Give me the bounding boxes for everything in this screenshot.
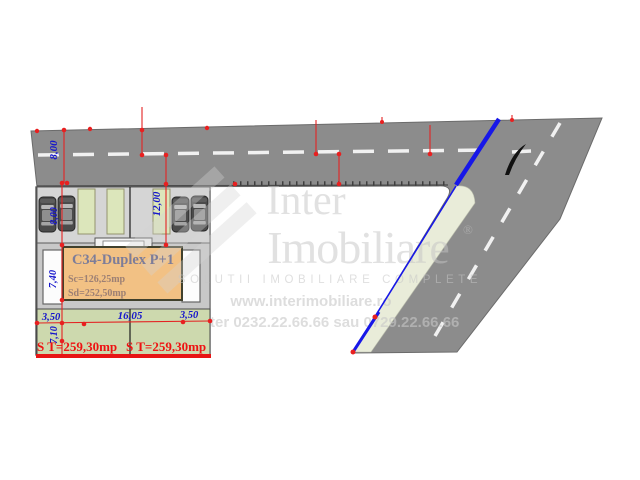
green-strip-1 [78, 189, 95, 234]
watermark-brand-top: Inter [266, 178, 345, 224]
watermark-website: www.interimobiliare.ro [229, 293, 391, 310]
watermark-registered-icon: ® [463, 222, 473, 237]
building-developed-area: Sd=252,50mp [68, 288, 127, 299]
dim-building-depth: 7,40 [48, 269, 59, 288]
dim-front-right: 3,50 [179, 310, 199, 321]
watermark-phone: ter 0232.22.66.66 sau 0729.22.66.66 [210, 314, 459, 331]
watermark-tagline: SOLUTII IMOBILIARE COMPLETE [178, 274, 482, 286]
building-title: C34-Duplex P+1 [72, 252, 174, 268]
dim-front-width: 16,05 [118, 310, 143, 322]
lot-right-area-label: S T=259,30mp [126, 339, 206, 354]
lot-left-area-label: S T=259,30mp [37, 339, 117, 354]
building-built-area: Sc=126,25mp [68, 274, 126, 285]
dim-front-left: 3,50 [41, 312, 61, 323]
site-plan-screenshot: Inter Imobiliare ® SOLUTII IMOBILIARE CO… [0, 0, 640, 480]
site-plan-svg: Inter Imobiliare ® SOLUTII IMOBILIARE CO… [0, 0, 640, 480]
dim-road-width: 8,00 [48, 140, 60, 160]
dim-side-depth: 12,00 [151, 191, 163, 216]
junction-dash [512, 151, 531, 152]
green-strip-2 [107, 189, 124, 234]
dim-parking-depth: 8,00 [49, 207, 60, 225]
watermark-brand-bottom: Imobiliare [267, 222, 449, 273]
parked-car-2 [58, 196, 75, 231]
